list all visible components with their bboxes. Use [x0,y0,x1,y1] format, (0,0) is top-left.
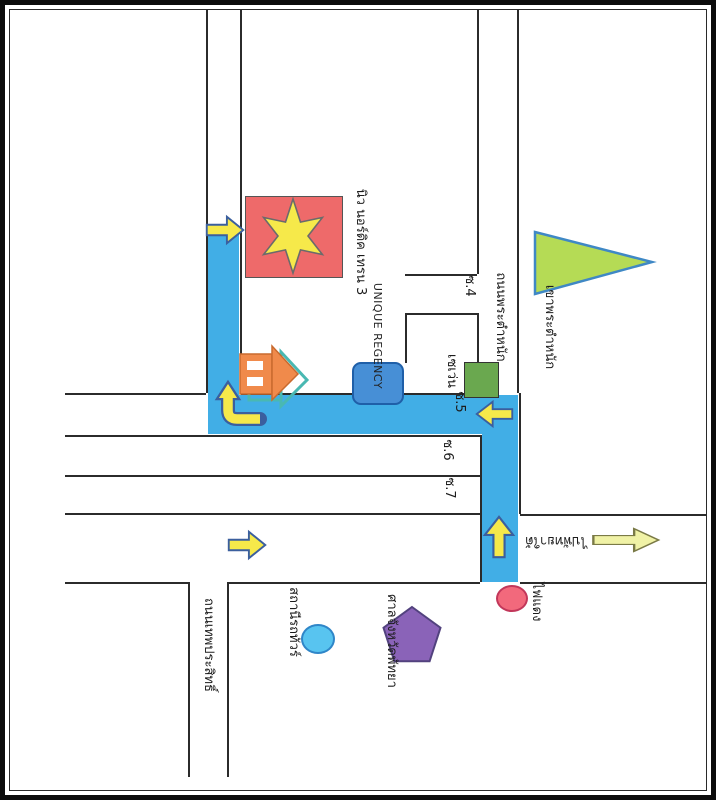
road-line [65,435,480,437]
road-line-east [520,514,706,516]
map-canvas: นิว นอร์ดิค เทรน 3 UNIQUE REGENCY เซเว่น… [0,0,716,800]
road-line-soi4-end [405,313,407,363]
road-line-left-road [206,10,208,393]
phra-tamnak-road-label: ถนนพระตำหนัก [493,272,507,361]
road-line-thepprasit [227,582,229,777]
soi6-label: ซ.6 [440,439,454,460]
road-line-phratamnak [517,10,519,393]
road-line-route-edge [480,435,482,582]
soi7-label: ซ.7 [442,477,456,498]
bus-station-marker [301,624,335,654]
arrow-right-bottom-road [228,531,266,559]
seven-eleven-label: เซเว่น [444,354,458,388]
road-line-bottom [65,582,188,584]
thepprasit-road-label: ถนนเทพประสิทธิ์ [201,598,215,692]
arrow-left-on-route [476,401,513,427]
road-line-route-edge [519,393,521,514]
to-south-pattaya-label: ไปพัทยาใต้ [525,533,587,547]
seven-eleven-marker [464,362,499,398]
traffic-light-marker [496,585,528,612]
road-line-phratamnak [477,10,479,274]
road-line-bottom [227,582,480,584]
court-label: ศาลจังหวัดพัทยา [384,594,398,688]
star-icon [250,196,336,276]
soi5-label: ซ.5 [452,391,466,412]
unique-regency-label: UNIQUE REGENCY [371,283,383,389]
road-line-soi6 [65,475,480,477]
hill-label: เขาพระตำหนัก [542,285,556,369]
road-line-soi7 [65,513,480,515]
road-line [65,393,206,395]
road-line-left-road [240,10,242,393]
road-line-soi4 [405,313,477,315]
arrow-turn-up-icon [210,378,265,428]
arrow-up-on-route [484,516,514,558]
destination-label: นิว นอร์ดิค เทรน 3 [353,189,367,296]
road-line-bottom [520,582,706,584]
arrow-right-destination [206,216,244,244]
bus-station-label: สถานีรถทัวร์ [286,587,300,657]
arrow-right-outlined [592,528,660,552]
road-line-thepprasit [188,582,190,777]
soi4-label: ซ.4 [462,275,476,296]
traffic-light-label: ไฟแดง [529,583,543,622]
